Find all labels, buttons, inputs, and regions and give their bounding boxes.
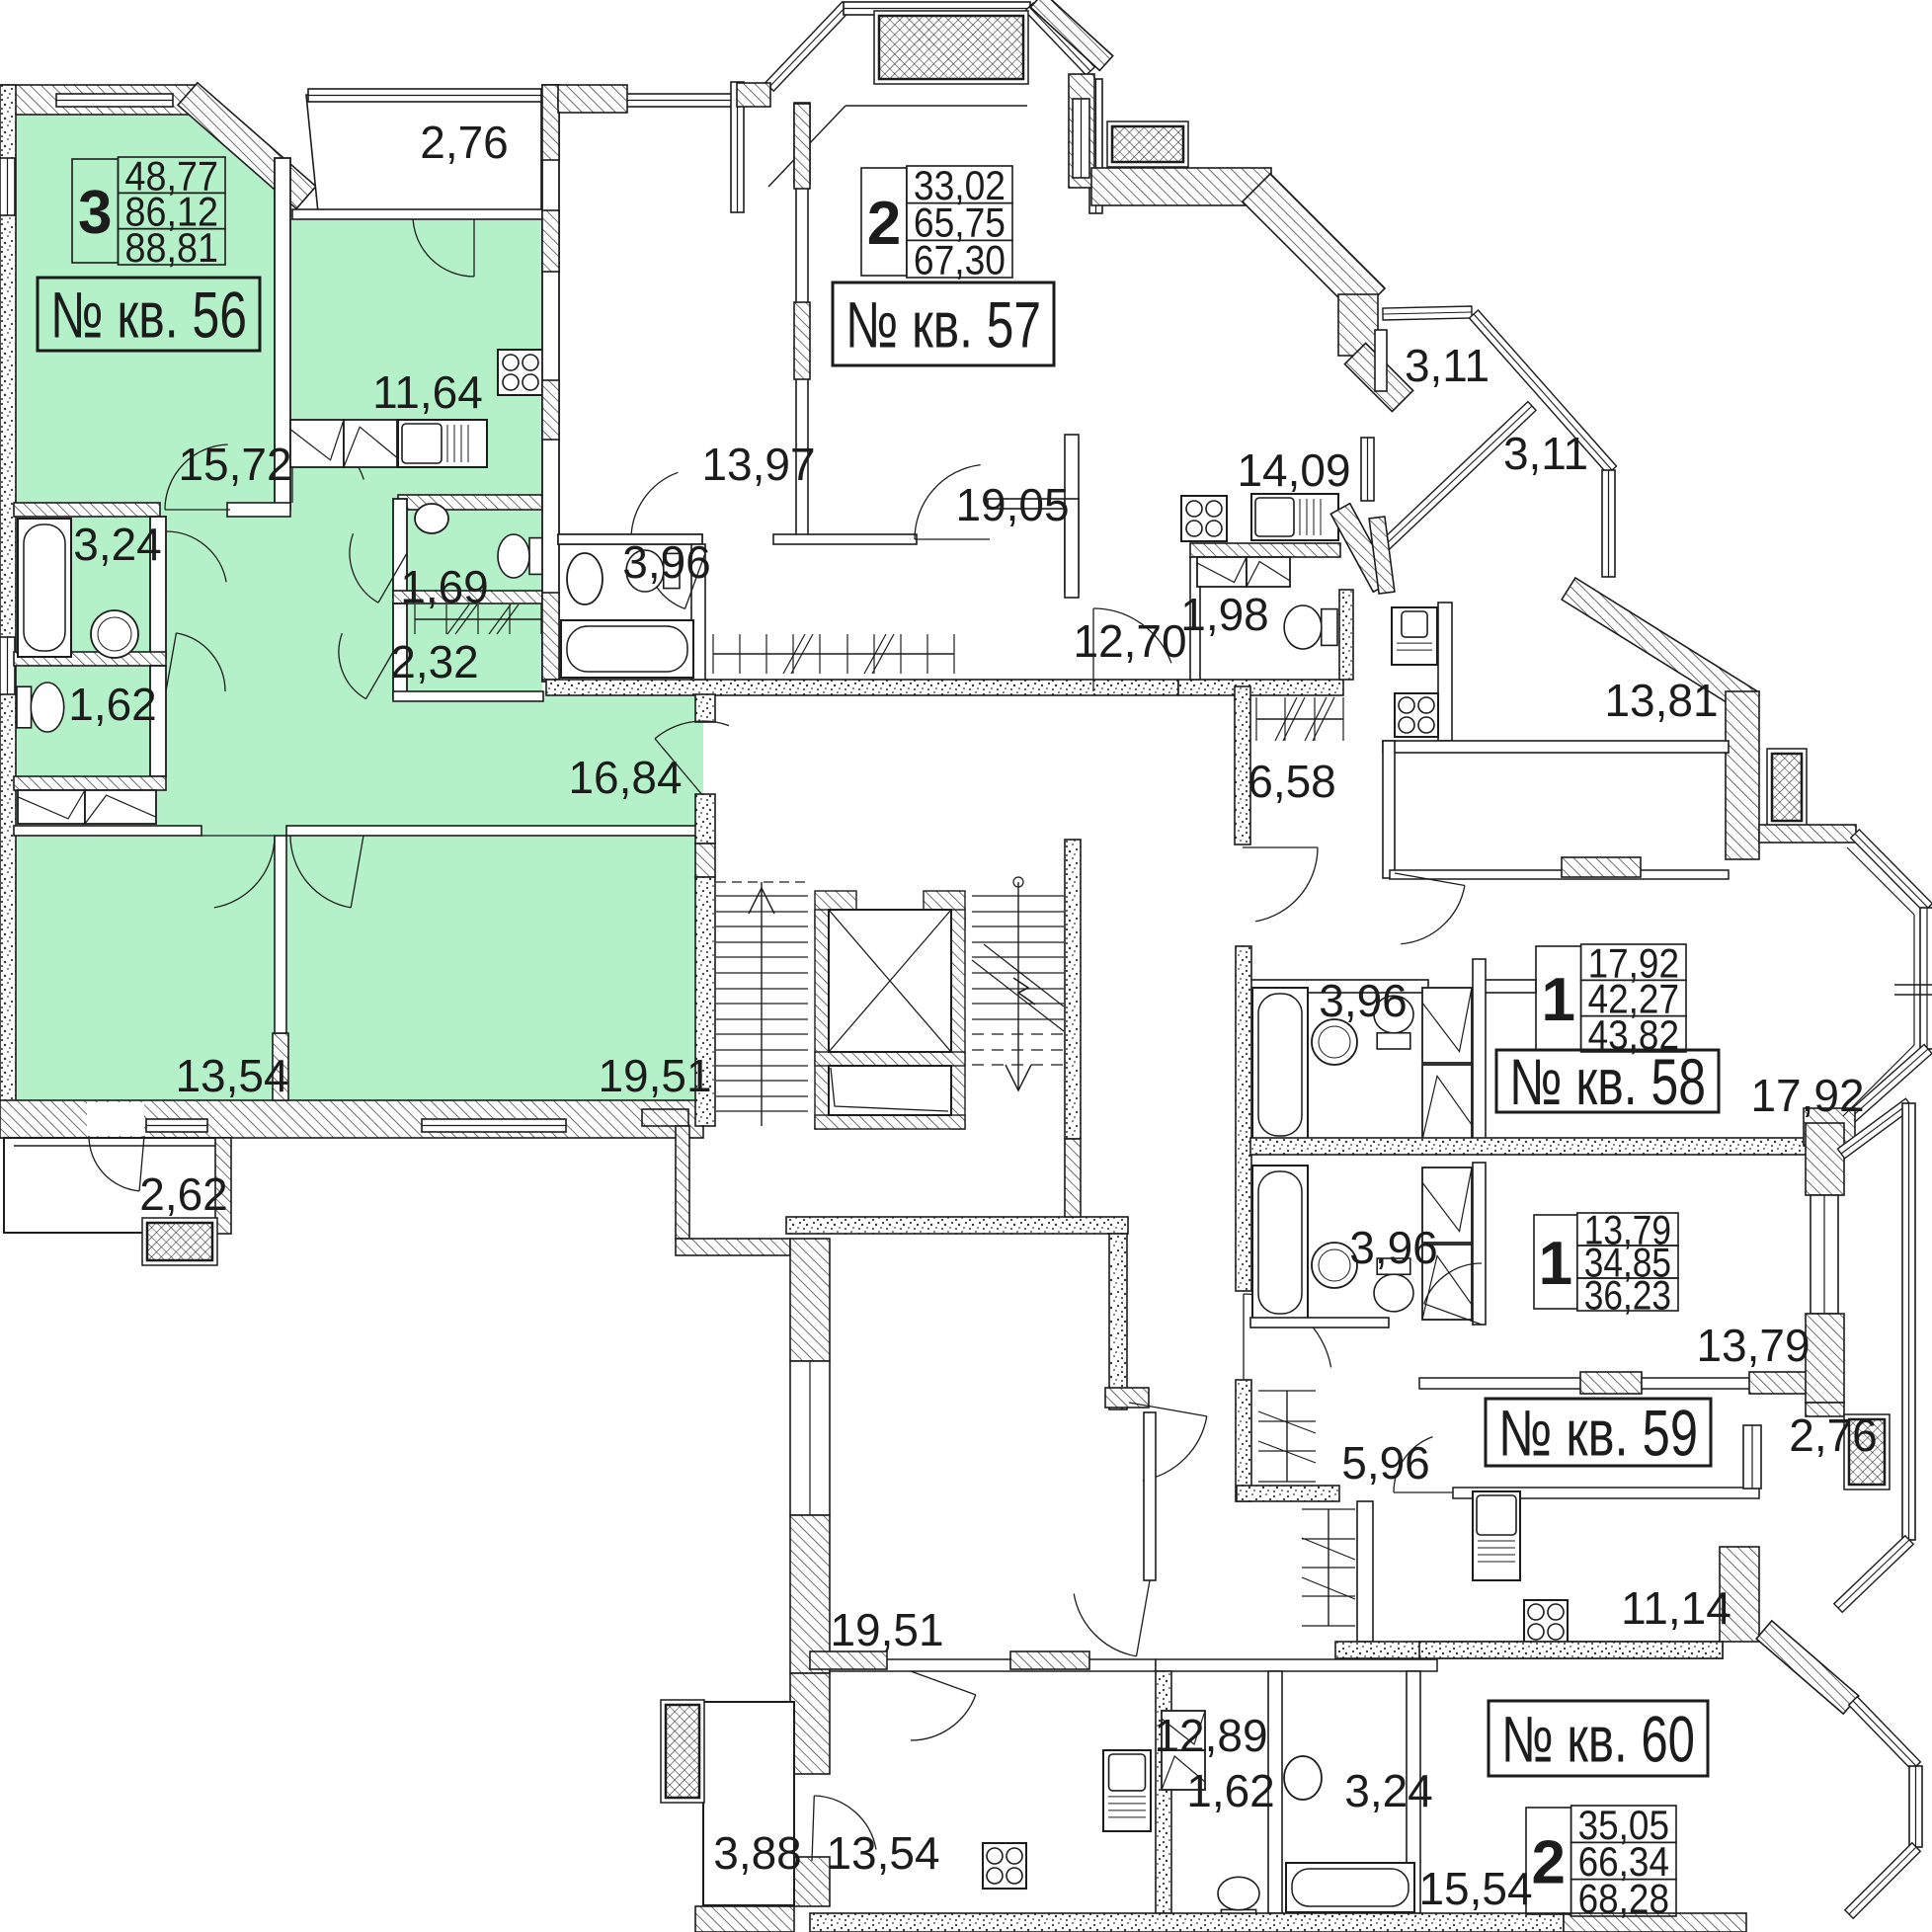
svg-text:1: 1: [1539, 1230, 1572, 1298]
svg-text:№ кв. 57: № кв. 57: [845, 287, 1041, 361]
svg-text:13,97: 13,97: [701, 439, 815, 490]
svg-text:13,54: 13,54: [175, 1050, 288, 1101]
svg-text:3,88: 3,88: [713, 1827, 802, 1879]
svg-text:88,81: 88,81: [125, 224, 219, 271]
svg-text:68,28: 68,28: [1578, 1875, 1669, 1921]
svg-text:3,96: 3,96: [1319, 975, 1408, 1026]
svg-text:12,70: 12,70: [1073, 615, 1186, 667]
svg-text:№ кв. 56: № кв. 56: [50, 278, 247, 351]
svg-text:3,96: 3,96: [622, 536, 711, 588]
svg-text:43,82: 43,82: [1588, 1011, 1679, 1058]
svg-text:3,96: 3,96: [1349, 1222, 1438, 1273]
svg-text:1,62: 1,62: [68, 679, 157, 730]
svg-text:2,76: 2,76: [1789, 1409, 1878, 1461]
svg-text:3,24: 3,24: [73, 519, 162, 570]
svg-text:67,30: 67,30: [914, 236, 1006, 282]
svg-text:36,23: 36,23: [1584, 1272, 1671, 1319]
svg-text:19,51: 19,51: [830, 1604, 943, 1655]
svg-text:2,32: 2,32: [390, 636, 479, 687]
svg-text:1,69: 1,69: [400, 561, 489, 612]
svg-text:3,11: 3,11: [1405, 340, 1489, 391]
svg-text:3,11: 3,11: [1503, 428, 1588, 479]
svg-text:15,54: 15,54: [1418, 1863, 1532, 1914]
svg-text:19,51: 19,51: [598, 1050, 711, 1101]
svg-text:1,98: 1,98: [1180, 589, 1269, 640]
svg-text:17,92: 17,92: [1750, 1070, 1864, 1121]
svg-text:13,79: 13,79: [1696, 1320, 1810, 1371]
svg-text:2: 2: [1532, 1828, 1566, 1896]
svg-text:1: 1: [1542, 966, 1575, 1034]
svg-text:5,96: 5,96: [1341, 1437, 1430, 1489]
svg-text:12,89: 12,89: [1154, 1710, 1267, 1761]
svg-text:№ кв. 60: № кв. 60: [1501, 1702, 1695, 1775]
svg-text:15,72: 15,72: [178, 439, 291, 490]
svg-text:1,62: 1,62: [1186, 1765, 1275, 1816]
svg-text:3,24: 3,24: [1344, 1765, 1433, 1816]
svg-text:11,14: 11,14: [1621, 1582, 1731, 1634]
svg-text:3: 3: [78, 179, 112, 247]
svg-text:14,09: 14,09: [1237, 444, 1350, 496]
svg-text:11,64: 11,64: [372, 366, 483, 418]
svg-text:№ кв. 59: № кв. 59: [1498, 1396, 1698, 1469]
svg-text:13,81: 13,81: [1604, 675, 1718, 726]
svg-text:2,62: 2,62: [139, 1168, 228, 1220]
svg-text:13,54: 13,54: [826, 1827, 939, 1879]
svg-text:19,05: 19,05: [955, 479, 1069, 530]
svg-text:6,58: 6,58: [1248, 756, 1336, 807]
svg-text:2,76: 2,76: [420, 117, 509, 168]
svg-text:2: 2: [867, 190, 901, 258]
svg-text:16,84: 16,84: [568, 752, 682, 803]
